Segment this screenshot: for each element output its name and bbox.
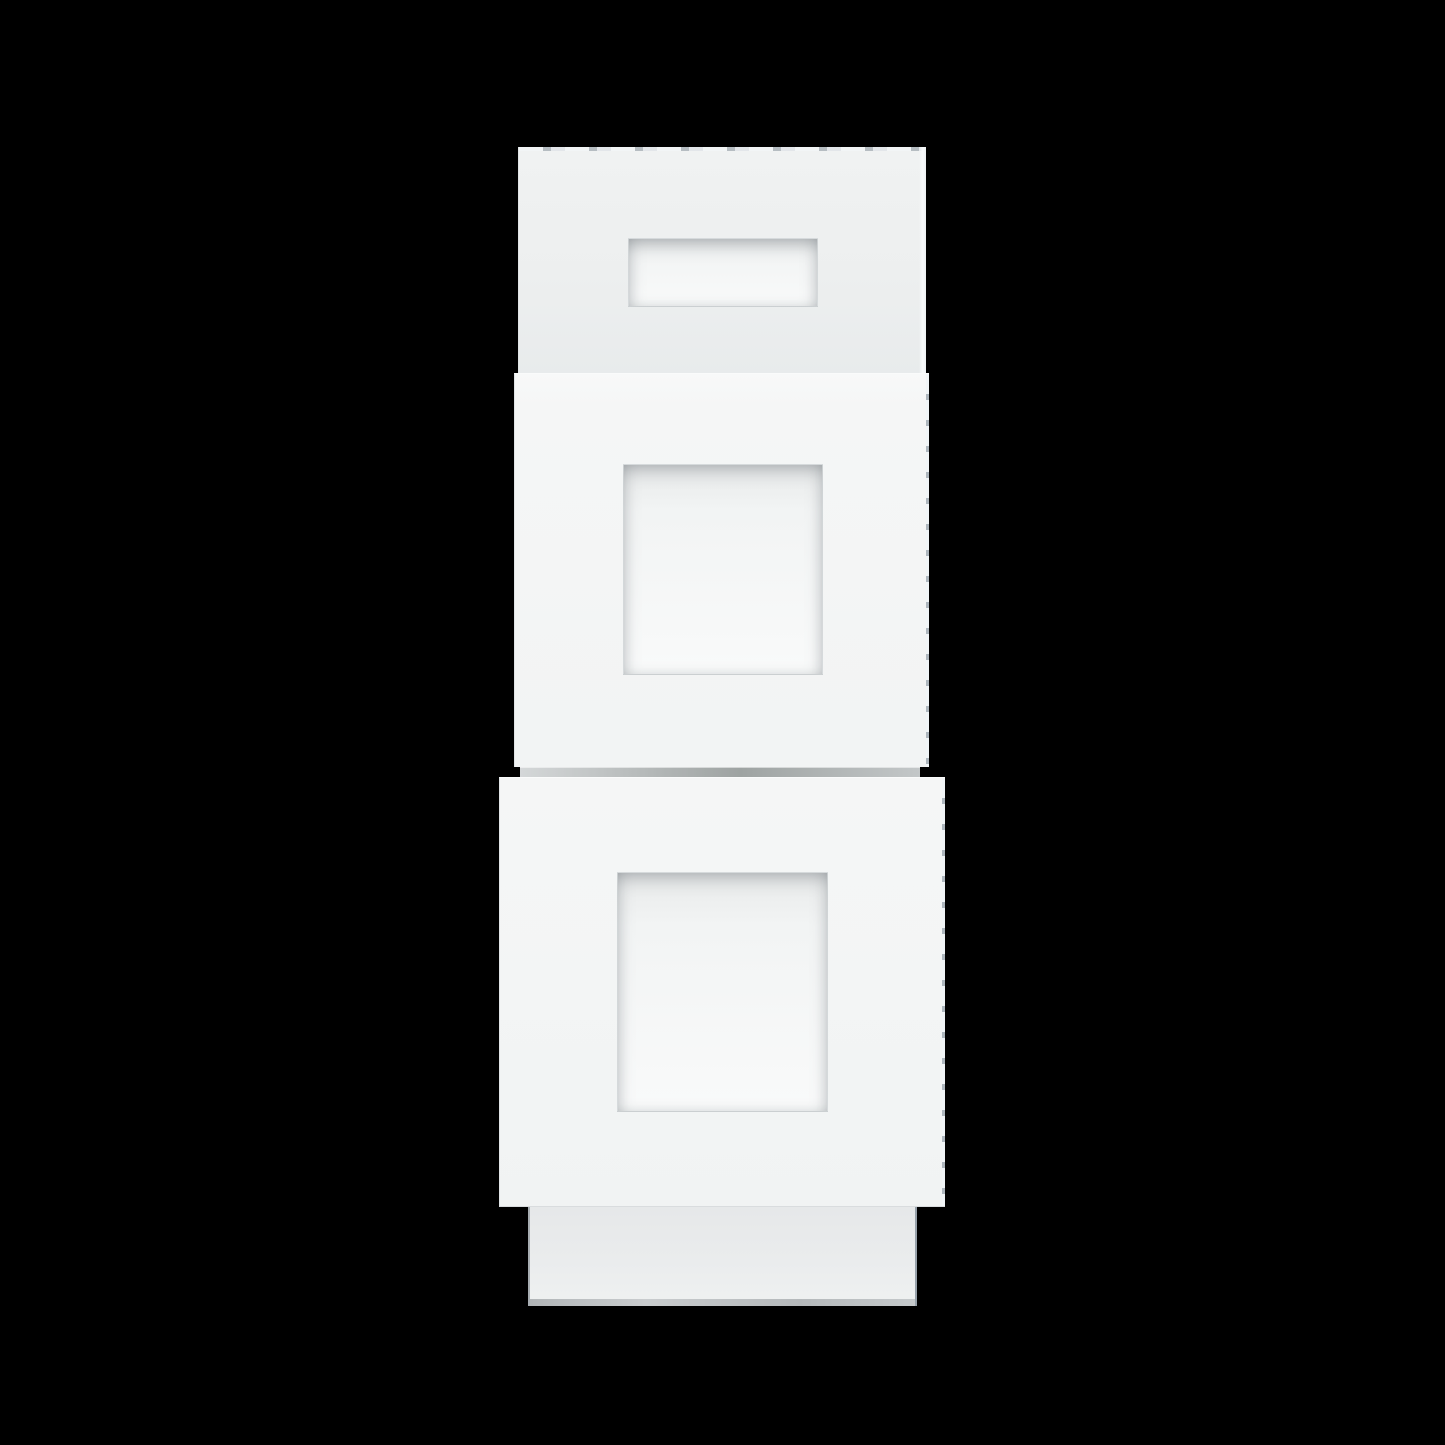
- product-render-canvas: [0, 0, 1445, 1445]
- top-drawer-recessed-panel: [628, 238, 818, 307]
- middle-drawer-recessed-panel: [623, 464, 823, 675]
- toe-kick-panel: [528, 1207, 917, 1306]
- bottom-drawer-recessed-panel: [617, 872, 828, 1112]
